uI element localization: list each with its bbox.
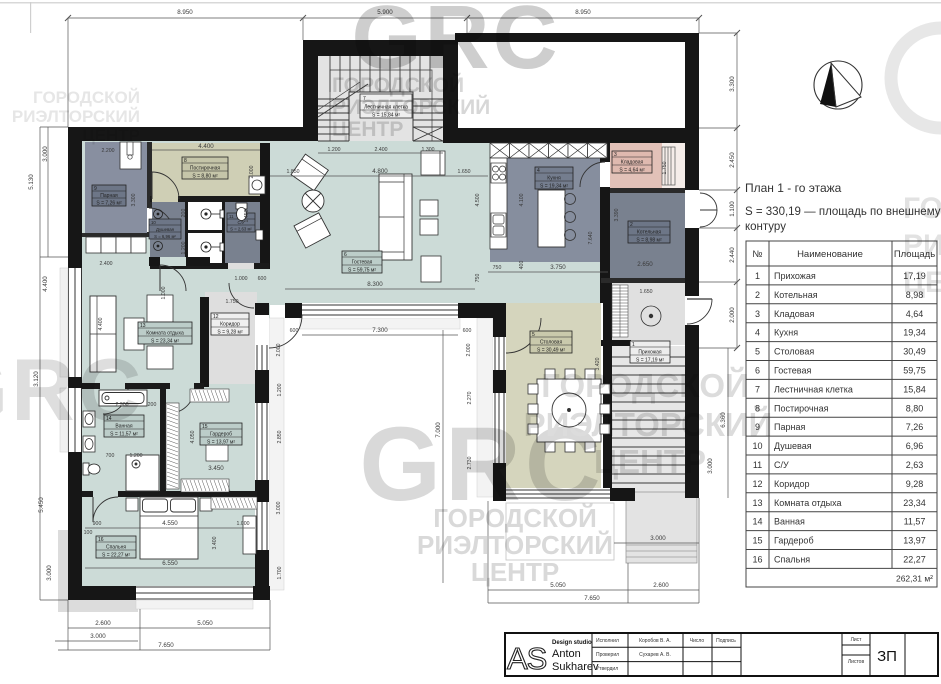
svg-text:2.900: 2.900 [116, 402, 129, 408]
svg-text:S = 22,27 м²: S = 22,27 м² [102, 553, 130, 559]
svg-text:4: 4 [755, 328, 760, 338]
svg-text:5.450: 5.450 [38, 497, 45, 513]
svg-text:ЗП: ЗП [877, 648, 897, 665]
svg-text:10: 10 [151, 220, 156, 225]
svg-text:8: 8 [184, 158, 187, 164]
svg-text:15,84: 15,84 [903, 384, 926, 394]
svg-text:Парная: Парная [100, 193, 118, 199]
svg-text:23,34: 23,34 [903, 498, 926, 508]
svg-text:Кладовая: Кладовая [774, 309, 814, 319]
svg-text:3.400: 3.400 [212, 536, 218, 549]
svg-text:Комната отдыха: Комната отдыха [146, 331, 184, 337]
svg-text:Котельная: Котельная [637, 230, 661, 236]
svg-text:3.300: 3.300 [729, 76, 736, 92]
svg-text:19,34: 19,34 [903, 328, 926, 338]
svg-text:1.450: 1.450 [244, 209, 250, 222]
svg-text:Листов: Листов [848, 659, 865, 665]
svg-text:2,63: 2,63 [906, 460, 924, 470]
svg-text:Душевая: Душевая [774, 441, 812, 451]
svg-text:5.050: 5.050 [197, 620, 213, 627]
svg-text:3.000: 3.000 [90, 633, 106, 640]
svg-text:Спальня: Спальня [106, 545, 126, 551]
svg-text:2.400: 2.400 [375, 147, 388, 153]
svg-text:1.000: 1.000 [235, 276, 248, 282]
svg-text:Лестничная клетка: Лестничная клетка [364, 105, 408, 111]
svg-text:15: 15 [202, 424, 208, 430]
svg-text:S = 15,84 м²: S = 15,84 м² [372, 113, 400, 119]
svg-text:S = 59,75 м²: S = 59,75 м² [348, 268, 376, 274]
svg-text:11,57: 11,57 [904, 517, 926, 527]
svg-text:2.440: 2.440 [729, 247, 736, 263]
svg-text:5: 5 [532, 332, 535, 338]
svg-text:Число: Число [690, 638, 705, 644]
svg-text:Лист: Лист [851, 637, 863, 643]
svg-text:9: 9 [755, 422, 760, 432]
svg-text:Проверил: Проверил [596, 652, 619, 658]
svg-text:2: 2 [755, 290, 760, 300]
svg-text:6: 6 [344, 252, 347, 258]
svg-text:S = 2,63 м²: S = 2,63 м² [230, 227, 252, 232]
svg-text:7.650: 7.650 [584, 595, 600, 602]
svg-text:12: 12 [752, 479, 762, 489]
svg-text:Котельная: Котельная [774, 290, 818, 300]
svg-text:1.650: 1.650 [458, 169, 471, 175]
svg-text:S = 23,34 м²: S = 23,34 м² [151, 339, 179, 345]
svg-text:1.650: 1.650 [640, 289, 653, 295]
svg-text:16: 16 [752, 555, 762, 565]
svg-text:2.000: 2.000 [249, 165, 255, 178]
svg-text:3.300: 3.300 [131, 193, 137, 206]
svg-text:2: 2 [630, 222, 633, 228]
svg-text:Кладовая: Кладовая [621, 160, 644, 166]
svg-text:Прихожая: Прихожая [774, 271, 816, 281]
svg-text:4: 4 [537, 168, 540, 174]
svg-text:8.300: 8.300 [367, 281, 383, 288]
svg-text:S = 19,34 м²: S = 19,34 м² [540, 184, 568, 190]
svg-text:10: 10 [752, 441, 762, 451]
svg-text:3.000: 3.000 [276, 501, 282, 514]
svg-text:Исполнил: Исполнил [596, 638, 619, 644]
svg-text:3.120: 3.120 [33, 371, 40, 387]
svg-text:59,75: 59,75 [903, 366, 926, 376]
svg-text:2.600: 2.600 [653, 582, 669, 589]
svg-text:200: 200 [148, 402, 157, 408]
svg-text:700: 700 [106, 453, 115, 459]
svg-text:14: 14 [106, 416, 112, 422]
svg-text:1.750: 1.750 [662, 161, 668, 174]
svg-text:3: 3 [755, 309, 760, 319]
svg-text:8,80: 8,80 [906, 403, 924, 413]
svg-text:4.100: 4.100 [519, 193, 525, 206]
svg-text:8,98: 8,98 [906, 290, 924, 300]
svg-text:Утвердил: Утвердил [596, 666, 618, 672]
svg-text:4.550: 4.550 [162, 520, 178, 527]
svg-text:Душевая: Душевая [156, 227, 175, 232]
svg-text:Ванная: Ванная [774, 517, 805, 527]
svg-text:2.000: 2.000 [466, 343, 472, 356]
svg-text:3.450: 3.450 [208, 465, 224, 472]
svg-text:2.000: 2.000 [276, 343, 282, 356]
svg-text:2.000: 2.000 [729, 307, 736, 323]
svg-text:Гардероб: Гардероб [210, 432, 232, 438]
svg-text:12: 12 [213, 314, 219, 320]
svg-text:3.000: 3.000 [650, 535, 666, 542]
svg-text:5.130: 5.130 [28, 174, 35, 190]
svg-text:4.400: 4.400 [198, 143, 214, 150]
svg-text:7.300: 7.300 [372, 327, 388, 334]
svg-text:11: 11 [229, 214, 234, 219]
svg-text:Гостевая: Гостевая [774, 366, 811, 376]
svg-text:8.950: 8.950 [177, 9, 193, 16]
svg-text:4.500: 4.500 [475, 193, 481, 206]
svg-text:8.950: 8.950 [575, 9, 591, 16]
svg-text:7: 7 [363, 96, 366, 102]
svg-text:S = 4,64 м²: S = 4,64 м² [619, 168, 645, 174]
svg-text:План 1 - го этажа: План 1 - го этажа [745, 181, 842, 195]
svg-text:1.000: 1.000 [161, 286, 167, 299]
svg-text:1.750: 1.750 [226, 299, 239, 305]
svg-text:5.900: 5.900 [377, 9, 393, 16]
svg-text:Кухня: Кухня [774, 328, 798, 338]
svg-text:1.700: 1.700 [277, 566, 283, 579]
svg-text:4.400: 4.400 [98, 317, 104, 330]
svg-text:Прихожая: Прихожая [638, 350, 661, 356]
svg-text:7.640: 7.640 [588, 231, 594, 244]
svg-text:600: 600 [290, 328, 299, 334]
svg-text:13: 13 [752, 498, 762, 508]
svg-text:6,96: 6,96 [906, 441, 924, 451]
svg-text:Постирочная: Постирочная [774, 403, 829, 413]
svg-text:200: 200 [181, 209, 187, 218]
svg-text:Кухня: Кухня [547, 176, 561, 182]
svg-text:2.200: 2.200 [102, 148, 115, 154]
svg-text:6.550: 6.550 [162, 560, 178, 567]
svg-text:900: 900 [93, 521, 102, 527]
svg-text:1.200: 1.200 [328, 147, 341, 153]
svg-text:7: 7 [755, 384, 760, 394]
svg-text:1.100: 1.100 [729, 201, 736, 217]
svg-text:1: 1 [632, 342, 635, 348]
svg-text:2.730: 2.730 [467, 456, 473, 469]
svg-text:Sukharev: Sukharev [552, 661, 599, 673]
svg-text:5: 5 [755, 347, 760, 357]
svg-text:S = 7,26 м²: S = 7,26 м² [96, 201, 122, 207]
svg-text:Коробов В. А.: Коробов В. А. [639, 638, 671, 644]
svg-text:3.420: 3.420 [595, 357, 601, 370]
svg-text:Сухарев А. В.: Сухарев А. В. [639, 652, 671, 658]
svg-text:17,19: 17,19 [903, 271, 926, 281]
svg-text:Наименование: Наименование [797, 249, 863, 260]
svg-text:3.000: 3.000 [42, 146, 49, 162]
svg-text:контуру: контуру [745, 221, 786, 233]
svg-text:750: 750 [475, 274, 481, 283]
svg-text:6.360: 6.360 [720, 412, 727, 428]
svg-text:S = 30,49 м²: S = 30,49 м² [537, 348, 565, 354]
svg-text:Design studio: Design studio [552, 640, 592, 646]
svg-text:Подпись: Подпись [716, 638, 736, 644]
svg-text:16: 16 [98, 537, 104, 543]
svg-text:1.200: 1.200 [181, 241, 187, 254]
svg-text:S = 9,28 м²: S = 9,28 м² [217, 330, 243, 336]
svg-text:Гостевая: Гостевая [352, 260, 373, 266]
svg-text:8: 8 [755, 403, 760, 413]
svg-text:Парная: Парная [774, 422, 805, 432]
svg-text:400: 400 [519, 261, 525, 270]
svg-text:4.400: 4.400 [42, 276, 49, 292]
svg-text:Площадь: Площадь [894, 249, 935, 260]
svg-text:1.000: 1.000 [237, 521, 250, 527]
svg-text:3.390: 3.390 [614, 208, 620, 221]
svg-text:100: 100 [84, 530, 93, 536]
svg-text:7,26: 7,26 [906, 422, 924, 432]
svg-text:30,49: 30,49 [903, 347, 926, 357]
svg-text:Постирочная: Постирочная [190, 166, 221, 172]
svg-text:Коридор: Коридор [774, 479, 810, 489]
svg-text:3.000: 3.000 [46, 565, 53, 581]
svg-text:5.050: 5.050 [550, 582, 566, 589]
svg-text:262,31 м²: 262,31 м² [896, 574, 933, 584]
svg-text:1.850: 1.850 [287, 169, 300, 175]
svg-text:9: 9 [94, 186, 97, 192]
svg-text:6: 6 [755, 366, 760, 376]
svg-text:S = 6,96 м²: S = 6,96 м² [154, 234, 176, 239]
svg-text:С/У: С/У [774, 460, 789, 470]
svg-text:600: 600 [258, 276, 267, 282]
svg-text:S = 13,97 м²: S = 13,97 м² [207, 440, 235, 446]
svg-text:13: 13 [140, 323, 146, 329]
svg-text:14: 14 [752, 517, 762, 527]
svg-text:4.050: 4.050 [190, 430, 196, 443]
svg-text:AS: AS [507, 641, 547, 676]
svg-text:Столовая: Столовая [774, 347, 814, 357]
svg-text:Столовая: Столовая [540, 340, 563, 346]
svg-text:S = 330,19 — площадь по внешне: S = 330,19 — площадь по внешнему [745, 206, 941, 218]
svg-text:7.650: 7.650 [158, 642, 174, 649]
svg-text:9,28: 9,28 [906, 479, 924, 489]
svg-text:11: 11 [753, 460, 762, 470]
svg-text:Комната отдыха: Комната отдыха [774, 498, 842, 508]
svg-text:4,64: 4,64 [906, 309, 924, 319]
svg-text:600: 600 [463, 328, 472, 334]
svg-text:3.750: 3.750 [550, 264, 566, 271]
svg-text:Ванная: Ванная [115, 424, 132, 430]
svg-text:13,97: 13,97 [903, 536, 926, 546]
svg-text:1.200: 1.200 [130, 453, 143, 459]
svg-text:2.450: 2.450 [729, 152, 736, 168]
svg-text:Спальня: Спальня [774, 555, 810, 565]
svg-text:S = 8,98 м²: S = 8,98 м² [636, 238, 662, 244]
svg-text:1.300: 1.300 [422, 147, 435, 153]
svg-text:Гардероб: Гардероб [774, 536, 814, 546]
svg-text:7.000: 7.000 [435, 422, 442, 438]
svg-text:2.650: 2.650 [637, 261, 653, 268]
svg-text:S = 8,80 м²: S = 8,80 м² [192, 174, 218, 180]
svg-text:3: 3 [614, 152, 617, 158]
svg-text:22,27: 22,27 [903, 555, 926, 565]
svg-text:S = 11,57 м²: S = 11,57 м² [110, 432, 138, 438]
svg-text:S = 17,19 м²: S = 17,19 м² [636, 358, 664, 364]
svg-text:2.600: 2.600 [95, 620, 111, 627]
svg-text:Лестничная клетка: Лестничная клетка [774, 384, 853, 394]
svg-text:Anton: Anton [552, 648, 581, 660]
svg-text:3.000: 3.000 [707, 458, 714, 474]
svg-text:2.850: 2.850 [277, 430, 283, 443]
svg-text:1: 1 [755, 271, 760, 281]
svg-text:4.800: 4.800 [372, 168, 388, 175]
svg-text:2.270: 2.270 [467, 391, 473, 404]
svg-text:2.400: 2.400 [100, 261, 113, 267]
svg-text:Коридор: Коридор [220, 322, 240, 328]
svg-text:№: № [752, 249, 762, 260]
svg-text:15: 15 [752, 536, 762, 546]
svg-text:750: 750 [493, 265, 502, 271]
svg-text:1.200: 1.200 [277, 383, 283, 396]
